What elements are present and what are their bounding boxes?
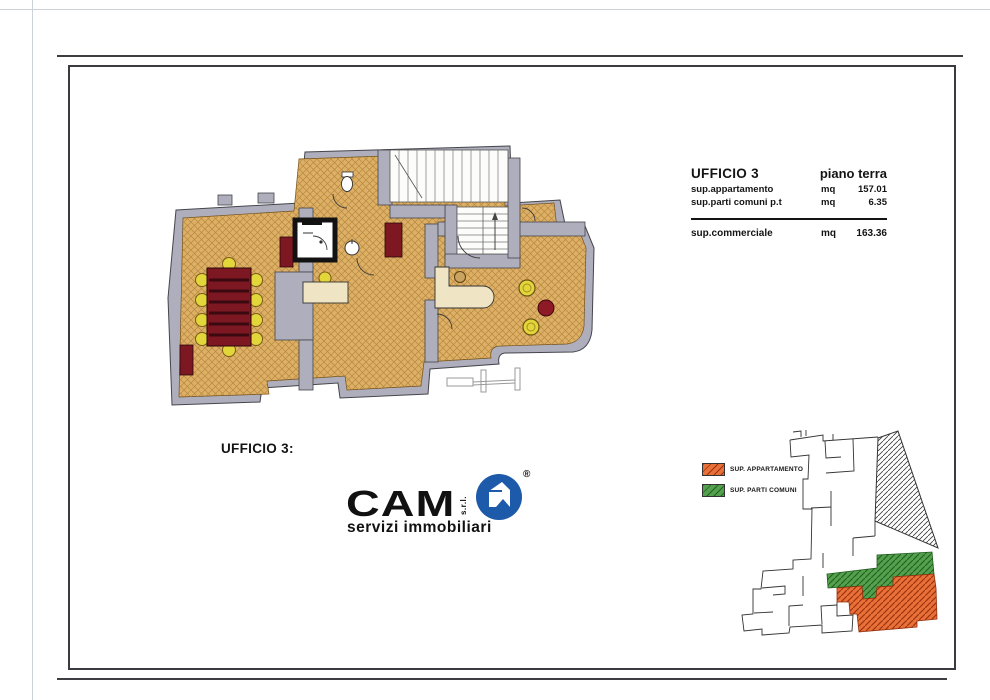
round-side-table [538,300,554,316]
area-value: 163.36 [843,228,887,239]
area-label: sup.appartamento [691,184,821,195]
keyplan-other-area [875,431,938,548]
floorplan-drawing [163,138,623,430]
area-row-commercial-total: sup.commerciale mq 163.36 [691,228,887,239]
area-row-apartment: sup.appartamento mq 157.01 [691,184,887,195]
legend: SUP. APPARTAMENTO SUP. PARTI COMUNI [702,463,822,505]
area-unit: mq [821,197,843,208]
unit-title: UFFICIO 3 [691,166,759,181]
common-parts-swatch-icon [702,484,725,497]
registered-trademark-symbol: ® [523,469,530,480]
area-label: sup.parti comuni p.t [691,197,821,208]
legend-label: SUP. APPARTAMENTO [730,466,803,473]
title-block: UFFICIO 3 piano terra sup.appartamento m… [691,166,887,239]
cam-logo: CAM s.r.l. ® servizi immobiliari [346,468,546,540]
logo-tagline: servizi immobiliari [347,519,492,537]
wall-bump [218,195,232,205]
legend-item-apartment: SUP. APPARTAMENTO [702,463,822,476]
plan-caption: UFFICIO 3: [221,441,294,456]
plate-outer-top-rule [57,55,963,57]
area-value: 157.01 [843,184,887,195]
floor-label: piano terra [820,166,887,181]
legend-item-common: SUP. PARTI COMUNI [702,484,822,497]
wall-bump [258,193,274,203]
logo-suffix: s.r.l. [459,496,468,515]
apartment-swatch-icon [702,463,725,476]
conference-table [207,268,251,346]
key-plan-sketch [733,416,965,656]
area-label: sup.commerciale [691,228,821,239]
title-block-rule [691,218,887,220]
office-desk [303,282,348,303]
desk-chair [455,272,466,283]
scan-artifact-line [0,9,990,10]
area-unit: mq [821,184,843,195]
area-row-common: sup.parti comuni p.t mq 6.35 [691,197,887,208]
scanned-floorplan-sheet: UFFICIO 3 piano terra sup.appartamento m… [0,0,990,700]
scan-artifact-line [32,0,33,700]
staircase-upper [390,150,508,202]
staircase-right [457,207,508,254]
elevator-shaft [295,218,335,260]
legend-label: SUP. PARTI COMUNI [730,487,797,494]
area-value: 6.35 [843,197,887,208]
area-unit: mq [821,228,843,239]
plate-outer-bottom-rule [57,678,947,680]
logo-house-icon [476,474,522,520]
balcony-railing [447,368,520,392]
